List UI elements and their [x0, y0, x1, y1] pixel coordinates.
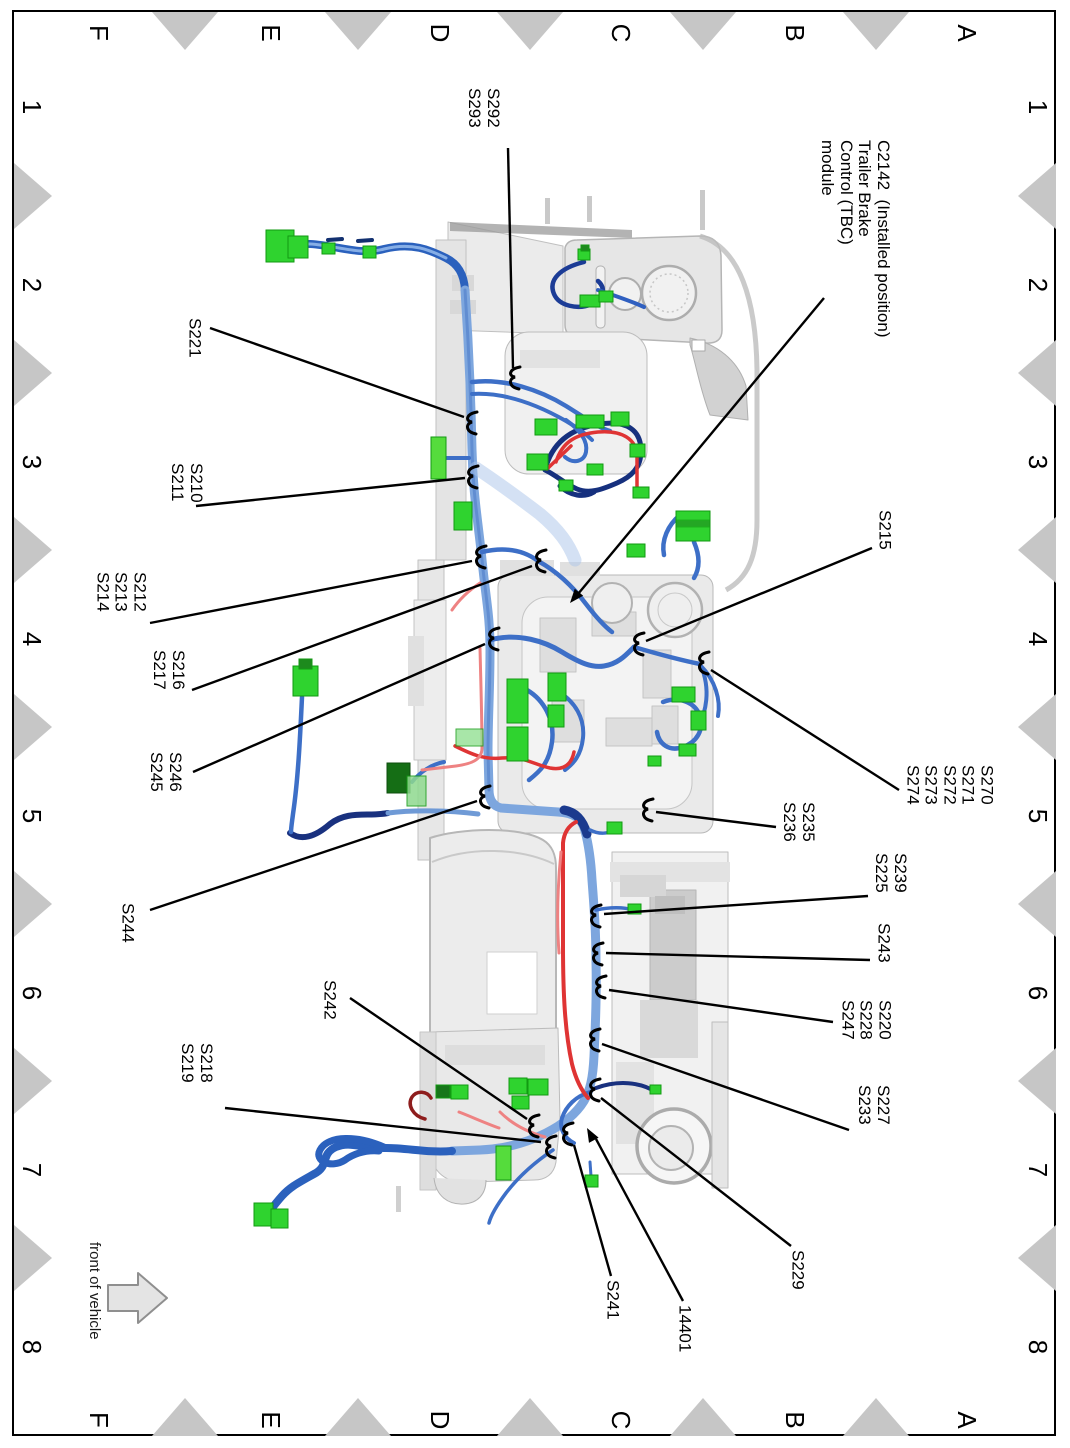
grid-triangle-bottom [497, 1398, 563, 1436]
callout-label-s239-s225: S239 S225 [872, 853, 909, 893]
grid-triangle-right [1018, 1225, 1056, 1291]
diagram-page: FFEEDDCCBBAA1122334455667788S292 S293C21… [0, 0, 1070, 1448]
leader-line-s216-s217 [192, 566, 532, 690]
grid-number-right: 4 [1025, 632, 1051, 646]
grid-triangle-left [14, 1048, 52, 1114]
grid-triangle-right [1018, 340, 1056, 406]
grid-triangle-bottom [843, 1398, 909, 1436]
splice-clip-icon-s221 [467, 412, 477, 434]
grid-letter-top: D [427, 24, 453, 43]
grid-triangle-bottom [325, 1398, 391, 1436]
leader-line-s210-s211 [196, 478, 465, 506]
grid-number-left: 7 [19, 1163, 45, 1177]
callout-label-s221: S221 [185, 318, 204, 358]
splice-clip-icon-s215 [634, 633, 644, 655]
splice-clip-icon-s210-s211 [468, 466, 478, 488]
grid-letter-top: B [782, 24, 808, 41]
grid-triangle-right [1018, 694, 1056, 760]
grid-number-right: 1 [1025, 100, 1051, 114]
leader-line-s246-s245 [193, 644, 485, 772]
grid-number-right: 6 [1025, 986, 1051, 1000]
callout-label-s229: S229 [788, 1250, 807, 1290]
leader-line-s218-s219 [225, 1108, 541, 1142]
leader-line-s215 [646, 548, 872, 641]
leader-line-h14401 [596, 1139, 683, 1301]
leader-line-s270-s274 [711, 670, 899, 790]
grid-triangle-left [14, 340, 52, 406]
splice-clip-icon-s239-s225 [591, 905, 601, 927]
callout-overlay [0, 0, 1070, 1448]
splice-clip-icon-s242 [529, 1115, 539, 1137]
front-of-vehicle-label: front of vehicle [86, 1242, 102, 1340]
grid-number-left: 1 [19, 100, 45, 114]
grid-letter-bottom: E [258, 1411, 284, 1428]
callout-label-s243: S243 [874, 923, 893, 963]
leader-line-s241 [574, 1145, 611, 1276]
grid-triangle-right [1018, 163, 1056, 229]
grid-letter-top: C [608, 24, 634, 43]
splice-clip-icon-s229 [590, 1079, 600, 1101]
grid-number-right: 8 [1025, 1340, 1051, 1354]
grid-number-left: 8 [19, 1340, 45, 1354]
leader-line-s220-s228-s247 [609, 990, 833, 1022]
callout-label-s235-s236: S235 S236 [780, 802, 817, 842]
callout-label-s292-s293: S292 S293 [465, 88, 502, 128]
grid-triangle-bottom [152, 1398, 218, 1436]
grid-triangle-top [670, 12, 736, 50]
grid-triangle-left [14, 1225, 52, 1291]
callout-label-s246-s245: S246 S245 [147, 752, 184, 792]
grid-letter-bottom: A [954, 1411, 980, 1428]
callout-label-s216-s217: S216 S217 [150, 650, 187, 690]
grid-letter-top: F [86, 25, 112, 41]
grid-letter-top: A [954, 24, 980, 41]
grid-number-left: 4 [19, 632, 45, 646]
callout-label-s242: S242 [320, 980, 339, 1020]
leader-line-s243 [606, 953, 870, 960]
splice-clip-icon-s212-s213-s214 [476, 546, 486, 568]
splice-clip-icon-s241 [563, 1123, 573, 1145]
leader-line-s212-s213-s214 [150, 561, 472, 623]
grid-number-left: 6 [19, 986, 45, 1000]
callout-label-c2142-tbc: C2142 (Installed position) Trailer Brake… [818, 140, 892, 338]
grid-number-right: 3 [1025, 455, 1051, 469]
callout-label-s241: S241 [603, 1280, 622, 1320]
callout-label-s212-s213-s214: S212 S213 S214 [93, 572, 149, 612]
callout-label-s244: S244 [118, 903, 137, 943]
leader-line-s292-s293 [508, 148, 513, 368]
grid-triangle-right [1018, 871, 1056, 937]
grid-triangle-left [14, 517, 52, 583]
callout-label-s220-s228-s247: S220 S228 S247 [838, 1000, 894, 1040]
splice-clip-icon-s235-s236 [643, 799, 653, 821]
leader-line-s227-s233 [602, 1044, 849, 1130]
leader-line-s242 [350, 998, 527, 1119]
grid-number-left: 5 [19, 809, 45, 823]
grid-number-right: 2 [1025, 278, 1051, 292]
grid-number-right: 5 [1025, 809, 1051, 823]
grid-letter-top: E [258, 24, 284, 41]
grid-number-left: 2 [19, 278, 45, 292]
leader-line-s239-s225 [604, 896, 868, 914]
grid-triangle-bottom [670, 1398, 736, 1436]
grid-triangle-left [14, 871, 52, 937]
callout-label-h14401: 14401 [675, 1305, 694, 1352]
grid-letter-bottom: C [608, 1411, 634, 1430]
splice-clip-icon-s218-s219 [546, 1136, 556, 1158]
grid-triangle-top [497, 12, 563, 50]
grid-letter-bottom: D [427, 1411, 453, 1430]
leader-line-c2142-tbc [578, 298, 824, 594]
callout-label-s210-s211: S210 S211 [168, 463, 205, 503]
leader-line-s221 [210, 328, 464, 417]
grid-triangle-left [14, 163, 52, 229]
grid-triangle-top [325, 12, 391, 50]
grid-triangle-left [14, 694, 52, 760]
grid-triangle-top [843, 12, 909, 50]
grid-number-left: 3 [19, 455, 45, 469]
splice-clip-icon-s244 [480, 786, 490, 808]
grid-triangle-right [1018, 1048, 1056, 1114]
splice-clip-icon-s220-s228-s247 [596, 976, 606, 998]
grid-letter-bottom: F [86, 1412, 112, 1428]
splice-clip-icon-s227-s233 [590, 1029, 600, 1051]
splice-clip-icon-s292-s293 [510, 367, 520, 389]
leader-line-s229 [601, 1098, 791, 1246]
splice-clip-icon-s216-s217 [536, 550, 546, 572]
callout-label-s215: S215 [875, 510, 894, 550]
splice-clip-icon-s270-s274 [699, 652, 709, 674]
splice-clip-icon-s246-s245 [489, 628, 499, 650]
leader-line-s235-s236 [656, 812, 776, 827]
callout-label-s218-s219: S218 S219 [178, 1043, 215, 1083]
leader-line-s244 [150, 801, 477, 910]
grid-number-right: 7 [1025, 1163, 1051, 1177]
grid-letter-bottom: B [782, 1411, 808, 1428]
grid-triangle-top [152, 12, 218, 50]
splice-clip-icon-s243 [593, 943, 603, 965]
callout-label-s227-s233: S227 S233 [855, 1085, 892, 1125]
callout-label-s270-s274: S270 S271 S272 S273 S274 [903, 765, 996, 805]
grid-triangle-right [1018, 517, 1056, 583]
